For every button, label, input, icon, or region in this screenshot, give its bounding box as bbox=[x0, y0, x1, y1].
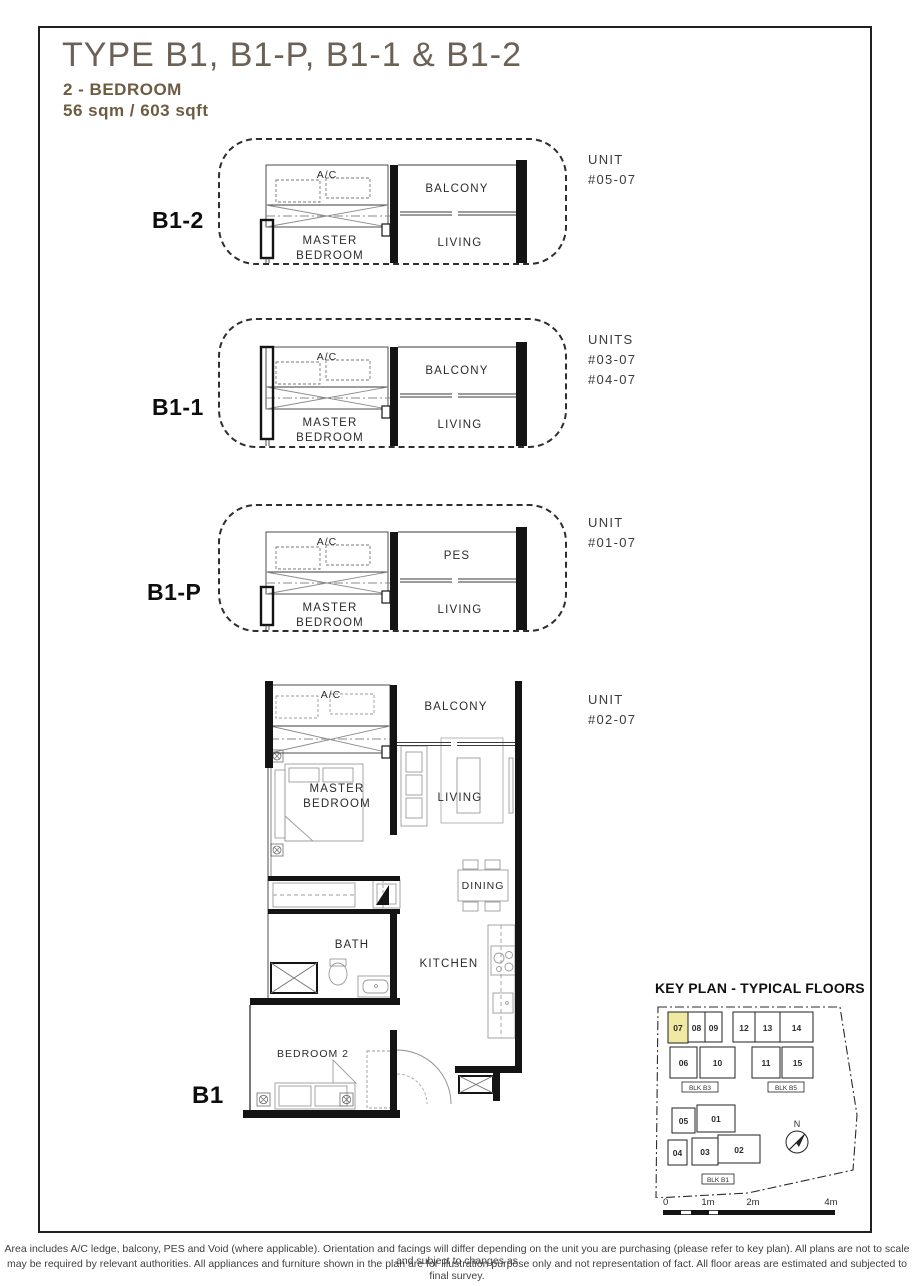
floorplan-b1-drawing: A/C BALCONY MASTER BEDROOM LIVING DINING… bbox=[243, 676, 543, 1138]
keyplan-unit-03: 03 bbox=[700, 1147, 710, 1157]
bedroom-count-subtitle: 2 - BEDROOM bbox=[63, 80, 182, 100]
plan-type-label-b1-2: B1-2 bbox=[152, 207, 204, 234]
room-label-outdoor: BALCONY bbox=[425, 183, 488, 195]
keyplan-unit-15: 15 bbox=[793, 1058, 803, 1068]
unit-area-text: 56 sqm / 603 sqft bbox=[63, 101, 209, 121]
plan-type-label-b1-p: B1-P bbox=[147, 579, 201, 606]
page-title: TYPE B1, B1-P, B1-1 & B1-2 bbox=[62, 36, 522, 75]
room-label-bedroom2: BEDROOM 2 bbox=[277, 1048, 349, 1060]
room-label-ac: A/C bbox=[321, 689, 342, 701]
unit-heading: UNIT bbox=[588, 513, 636, 533]
room-label-dining: DINING bbox=[462, 880, 505, 892]
unit-info-b1: UNIT #02-07 bbox=[588, 690, 636, 730]
scale-bar: 0 1m 2m 4m bbox=[663, 1196, 841, 1222]
room-label-master-1: MASTER bbox=[302, 235, 357, 247]
scale-label-0: 0 bbox=[663, 1197, 668, 1208]
unit-heading: UNIT bbox=[588, 150, 636, 170]
unit-info-b1-p: UNIT #01-07 bbox=[588, 513, 636, 553]
floorplan-b1-p-drawing: A/C PES MASTER BEDROOM LIVING bbox=[220, 506, 565, 630]
room-label-master-2: BEDROOM bbox=[296, 432, 364, 444]
plan-capsule-b1-2: A/C BALCONY MASTER BEDROOM LIVING bbox=[218, 138, 567, 265]
keyplan-unit-13: 13 bbox=[763, 1023, 773, 1033]
keyplan-unit-04: 04 bbox=[673, 1148, 683, 1158]
floorplan-b1-2-drawing: A/C BALCONY MASTER BEDROOM LIVING bbox=[220, 140, 565, 263]
keyplan-drawing: 07 08 09 12 13 14 06 10 11 15 05 01 04 0… bbox=[648, 1000, 863, 1198]
keyplan-unit-11: 11 bbox=[762, 1058, 771, 1068]
unit-number: #02-07 bbox=[588, 710, 636, 730]
unit-heading: UNITS bbox=[588, 330, 636, 350]
scale-labels: 0 1m 2m 4m bbox=[663, 1197, 838, 1208]
floorplan-page: TYPE B1, B1-P, B1-1 & B1-2 2 - BEDROOM 5… bbox=[0, 0, 914, 1286]
keyplan-unit-08: 08 bbox=[692, 1023, 702, 1033]
keyplan-block-b1-label: BLK B1 bbox=[707, 1177, 729, 1184]
unit-number: #03-07 bbox=[588, 350, 636, 370]
unit-heading: UNIT bbox=[588, 690, 636, 710]
scale-label-1m: 1m bbox=[701, 1197, 714, 1208]
room-label-outdoor: PES bbox=[444, 550, 471, 562]
keyplan-unit-12: 12 bbox=[739, 1023, 749, 1033]
keyplan-unit-14: 14 bbox=[792, 1023, 802, 1033]
keyplan-buildings bbox=[668, 1012, 813, 1184]
plan-type-label-b1: B1 bbox=[192, 1082, 224, 1110]
room-label-living: LIVING bbox=[438, 604, 483, 616]
room-label-master-1: MASTER bbox=[302, 417, 357, 429]
plan-type-label-b1-1: B1-1 bbox=[152, 394, 204, 421]
keyplan-title: KEY PLAN - TYPICAL FLOORS bbox=[655, 980, 865, 996]
scale-bar-segments bbox=[663, 1210, 835, 1215]
room-label-outdoor: BALCONY bbox=[425, 365, 488, 377]
door-jamb bbox=[382, 224, 390, 236]
room-label-living: LIVING bbox=[438, 237, 483, 249]
floorplan-b1-1-drawing: A/C BALCONY MASTER BEDROOM LIVING bbox=[220, 320, 565, 446]
north-arrow-icon: N bbox=[786, 1119, 808, 1153]
north-label: N bbox=[794, 1119, 801, 1129]
room-label-master-2: BEDROOM bbox=[296, 250, 364, 262]
door-jamb bbox=[382, 591, 390, 603]
room-label-master-1: MASTER bbox=[302, 602, 357, 614]
keyplan-block-b3-label: BLK B3 bbox=[689, 1085, 711, 1092]
keyplan-block-b5-label: BLK B5 bbox=[775, 1085, 797, 1092]
room-label-ac: A/C bbox=[317, 351, 338, 363]
keyplan-unit-10: 10 bbox=[713, 1058, 723, 1068]
unit-info-b1-1: UNITS #03-07 #04-07 bbox=[588, 330, 636, 390]
shafts bbox=[271, 963, 493, 1093]
room-label-balcony: BALCONY bbox=[424, 701, 487, 713]
keyplan-unit-02: 02 bbox=[734, 1145, 744, 1155]
keyplan-unit-09: 09 bbox=[709, 1023, 719, 1033]
door-jamb bbox=[382, 746, 390, 758]
scale-label-2m: 2m bbox=[746, 1197, 759, 1208]
room-label-master-1: MASTER bbox=[309, 783, 364, 795]
room-label-master-2: BEDROOM bbox=[303, 798, 371, 810]
door-jamb bbox=[382, 406, 390, 418]
keyplan-unit-05: 05 bbox=[679, 1116, 689, 1126]
keyplan-unit-07: 07 bbox=[673, 1023, 683, 1033]
disclaimer-line-2: may be required by relevant authorities.… bbox=[0, 1258, 914, 1282]
room-label-master-2: BEDROOM bbox=[296, 617, 364, 629]
unit-info-b1-2: UNIT #05-07 bbox=[588, 150, 636, 190]
room-label-bath: BATH bbox=[335, 939, 370, 951]
room-label-living: LIVING bbox=[438, 419, 483, 431]
room-label-kitchen: KITCHEN bbox=[420, 958, 479, 970]
room-label-ac: A/C bbox=[317, 536, 338, 548]
plan-capsule-b1-p: A/C PES MASTER BEDROOM LIVING bbox=[218, 504, 567, 632]
scale-label-4m: 4m bbox=[824, 1197, 837, 1208]
room-label-living: LIVING bbox=[438, 792, 483, 804]
room-label-ac: A/C bbox=[317, 169, 338, 181]
plan-capsule-b1-1: A/C BALCONY MASTER BEDROOM LIVING bbox=[218, 318, 567, 448]
unit-number: #01-07 bbox=[588, 533, 636, 553]
keyplan-unit-01: 01 bbox=[711, 1114, 721, 1124]
unit-number: #04-07 bbox=[588, 370, 636, 390]
keyplan-unit-06: 06 bbox=[679, 1058, 689, 1068]
riser-duct bbox=[376, 885, 389, 905]
unit-number: #05-07 bbox=[588, 170, 636, 190]
